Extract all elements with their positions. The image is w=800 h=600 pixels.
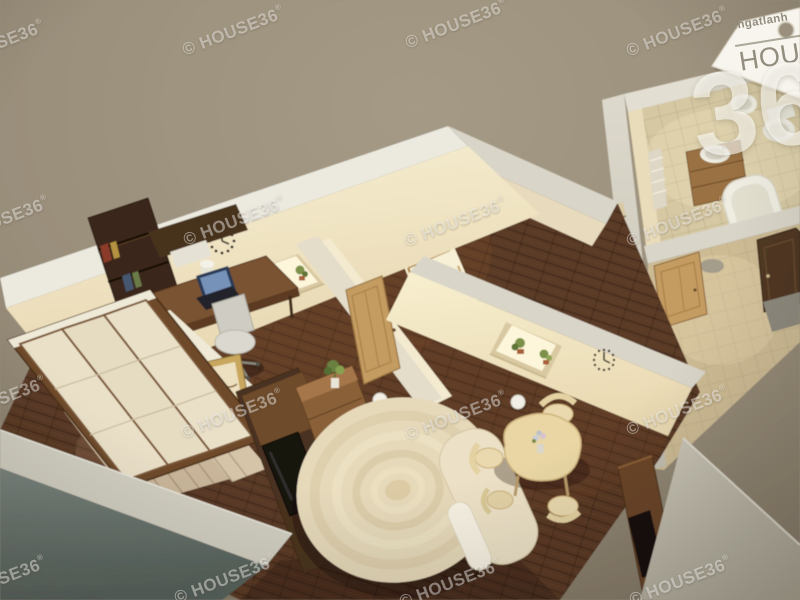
- scene: [0, 0, 800, 600]
- vignette: [0, 0, 800, 600]
- apartment-render: © HOUSE36®© HOUSE36®© HOUSE36®© HOUSE36®…: [0, 0, 800, 600]
- tag-hole: [778, 22, 794, 38]
